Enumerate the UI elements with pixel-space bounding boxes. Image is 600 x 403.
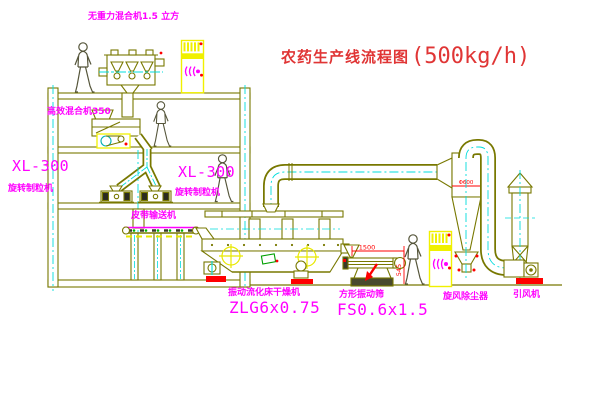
label-granulator-center-name: 旋转制粒机 (175, 189, 220, 198)
label-sieve-name: 方形振动筛 (339, 291, 384, 300)
fluid-bed-dryer (202, 211, 349, 284)
label-dryer-model: ZLG6x0.75 (229, 300, 320, 316)
rotary-granulator-right (138, 186, 173, 203)
label-sieve-model: FS0.6x1.5 (337, 302, 428, 318)
label-fan: 引风机 (513, 291, 540, 300)
sieve-height-dimension: 545 (395, 264, 403, 276)
diagram-title: 农药生产线流程图 (500kg/h) (281, 44, 530, 69)
label-dryer-name: 振动流化床干燥机 (228, 289, 300, 298)
vibrating-sieve: 1500 545 (343, 244, 406, 287)
person-ground (405, 235, 425, 284)
label-cyclone: 旋风除尘器 (443, 293, 488, 302)
control-cabinet-bottom (430, 232, 452, 287)
label-granulator-left-name: 旋转制粒机 (8, 185, 53, 194)
title-text: 农药生产线流程图 (281, 46, 409, 67)
exhaust-duct (263, 163, 440, 212)
person-second-floor (154, 102, 172, 146)
flow-diagram-canvas: Φ600 (0, 0, 600, 403)
induced-draft-fan (504, 260, 543, 284)
cyclone-dimension: Φ600 (459, 180, 474, 186)
label-granulator-center-model: XL-300 (178, 165, 235, 180)
person-roof (75, 43, 95, 92)
label-belt-conveyor: 皮带输送机 (131, 212, 176, 221)
sieve-length-dimension: 1500 (359, 244, 376, 252)
control-cabinet-top (182, 40, 204, 92)
label-weightless-mixer: 无重力混合机1.5 立方 (88, 13, 179, 22)
title-capacity: (500kg/h) (411, 44, 530, 69)
label-granulator-left-model: XL-300 (12, 159, 69, 174)
label-high-efficiency-mixer: 高效混合机350 (47, 108, 111, 117)
rotary-granulator-left (99, 186, 134, 203)
